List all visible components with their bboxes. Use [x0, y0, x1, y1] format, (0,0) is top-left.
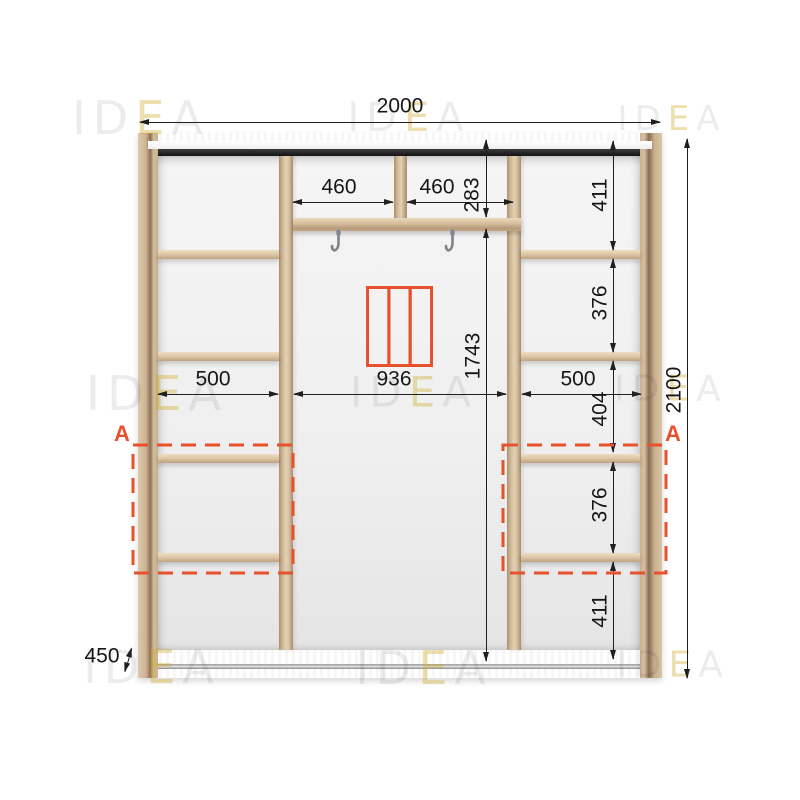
brand-watermark: IDEA [355, 641, 493, 695]
sliding-door-icon [366, 286, 433, 367]
dim-depth: 450 [84, 646, 119, 667]
brand-watermark: IDEA [350, 368, 478, 417]
dim-right-col-bottom: 411 [590, 594, 611, 627]
brand-watermark: IDEA [72, 91, 210, 145]
dim-top-compartment-height: 283 [462, 177, 483, 212]
brand-watermark: IDEA [618, 99, 727, 139]
dim-center-section-width: 936 [376, 369, 411, 390]
dim-center-section-height: 1743 [463, 333, 484, 380]
dim-left-column-width: 500 [195, 369, 230, 390]
brand-watermark: IDEA [616, 645, 730, 686]
dim-total-width: 2000 [377, 96, 424, 117]
dimension-line-right-bottom [613, 562, 614, 659]
dim-right-column-width: 500 [560, 369, 595, 390]
shelf [521, 250, 640, 259]
detail-region-a-left-box [131, 443, 295, 575]
sliding-track-top [158, 149, 640, 156]
shelf [158, 352, 279, 361]
rail-hook-icon [330, 229, 346, 257]
dimension-line-total-width [140, 122, 660, 123]
shelf [521, 352, 640, 361]
dimension-line-right-column-width [522, 394, 641, 395]
dimension-line-center-width [294, 394, 506, 395]
dim-top-right-compartment-width: 460 [419, 177, 454, 198]
dim-total-height: 2100 [664, 367, 685, 414]
dimension-line-center-height [486, 229, 487, 661]
dim-right-col-fourth: 376 [590, 487, 611, 522]
top-shelf-divider [394, 156, 407, 222]
dimension-line-top-compartment-height [486, 140, 487, 217]
shelf [158, 250, 279, 259]
dim-right-col-third: 404 [590, 391, 611, 426]
rail-hook-icon [444, 229, 460, 257]
technical-drawing-canvas: IDEA IDEA IDEA IDEA IDEA IDEA IDEA IDEA … [0, 0, 800, 800]
dim-right-col-top: 411 [590, 178, 611, 211]
dimension-line-right-top [613, 141, 614, 250]
dimension-line-total-height [687, 139, 688, 678]
wardrobe-top-panel [148, 141, 652, 149]
dimension-line-right-second [613, 259, 614, 352]
dimension-line-left-column-width [158, 394, 278, 395]
dimension-line-top-left-compartment [293, 202, 393, 203]
dimension-line-right-third [613, 361, 614, 452]
partition-left [279, 156, 293, 650]
detail-region-a-right-box [501, 443, 668, 575]
section-marker-a-right: A [665, 423, 681, 445]
dim-right-col-second: 376 [590, 285, 611, 320]
section-marker-a-left: A [114, 423, 130, 445]
dim-top-left-compartment-width: 460 [321, 177, 356, 198]
